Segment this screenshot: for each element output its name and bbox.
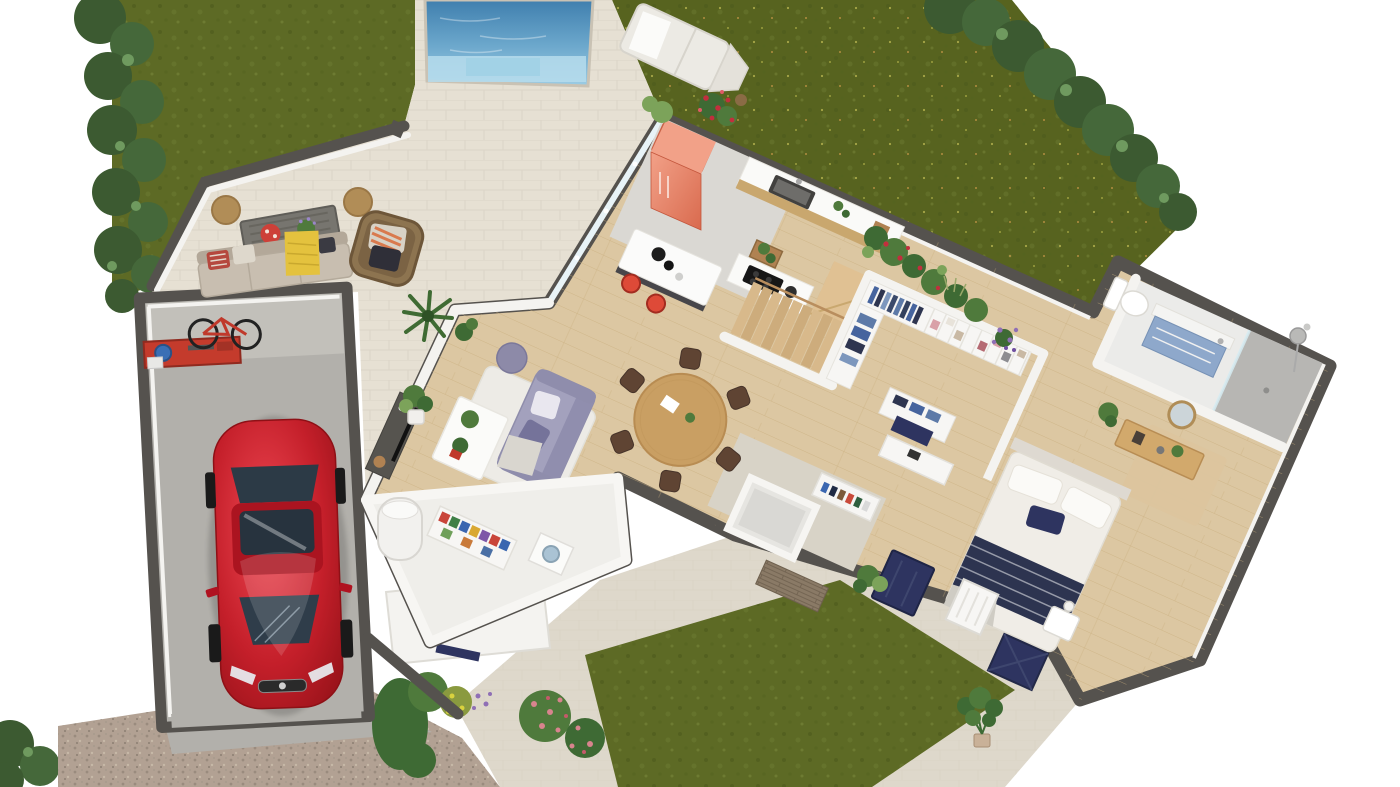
swimming-pool: [425, 0, 593, 86]
red-car: [199, 414, 357, 719]
garage-door-opening: [171, 711, 361, 721]
dark-pillow: [317, 237, 336, 254]
living-north-white-wall: [455, 303, 549, 310]
floor-plan-canvas: 3D rendered ground-floor plan: house wit…: [0, 0, 1400, 787]
car-rear-window: [231, 465, 320, 504]
garden-ball: [735, 94, 747, 106]
white-pillow: [232, 244, 256, 265]
white-crate: [147, 357, 163, 369]
floor-plan-render: 3D rendered ground-floor plan: house wit…: [0, 0, 1400, 787]
woven-pouf: [344, 188, 372, 216]
woven-pouf: [212, 196, 240, 224]
white-planter: [408, 410, 424, 424]
pool-step: [466, 58, 540, 76]
